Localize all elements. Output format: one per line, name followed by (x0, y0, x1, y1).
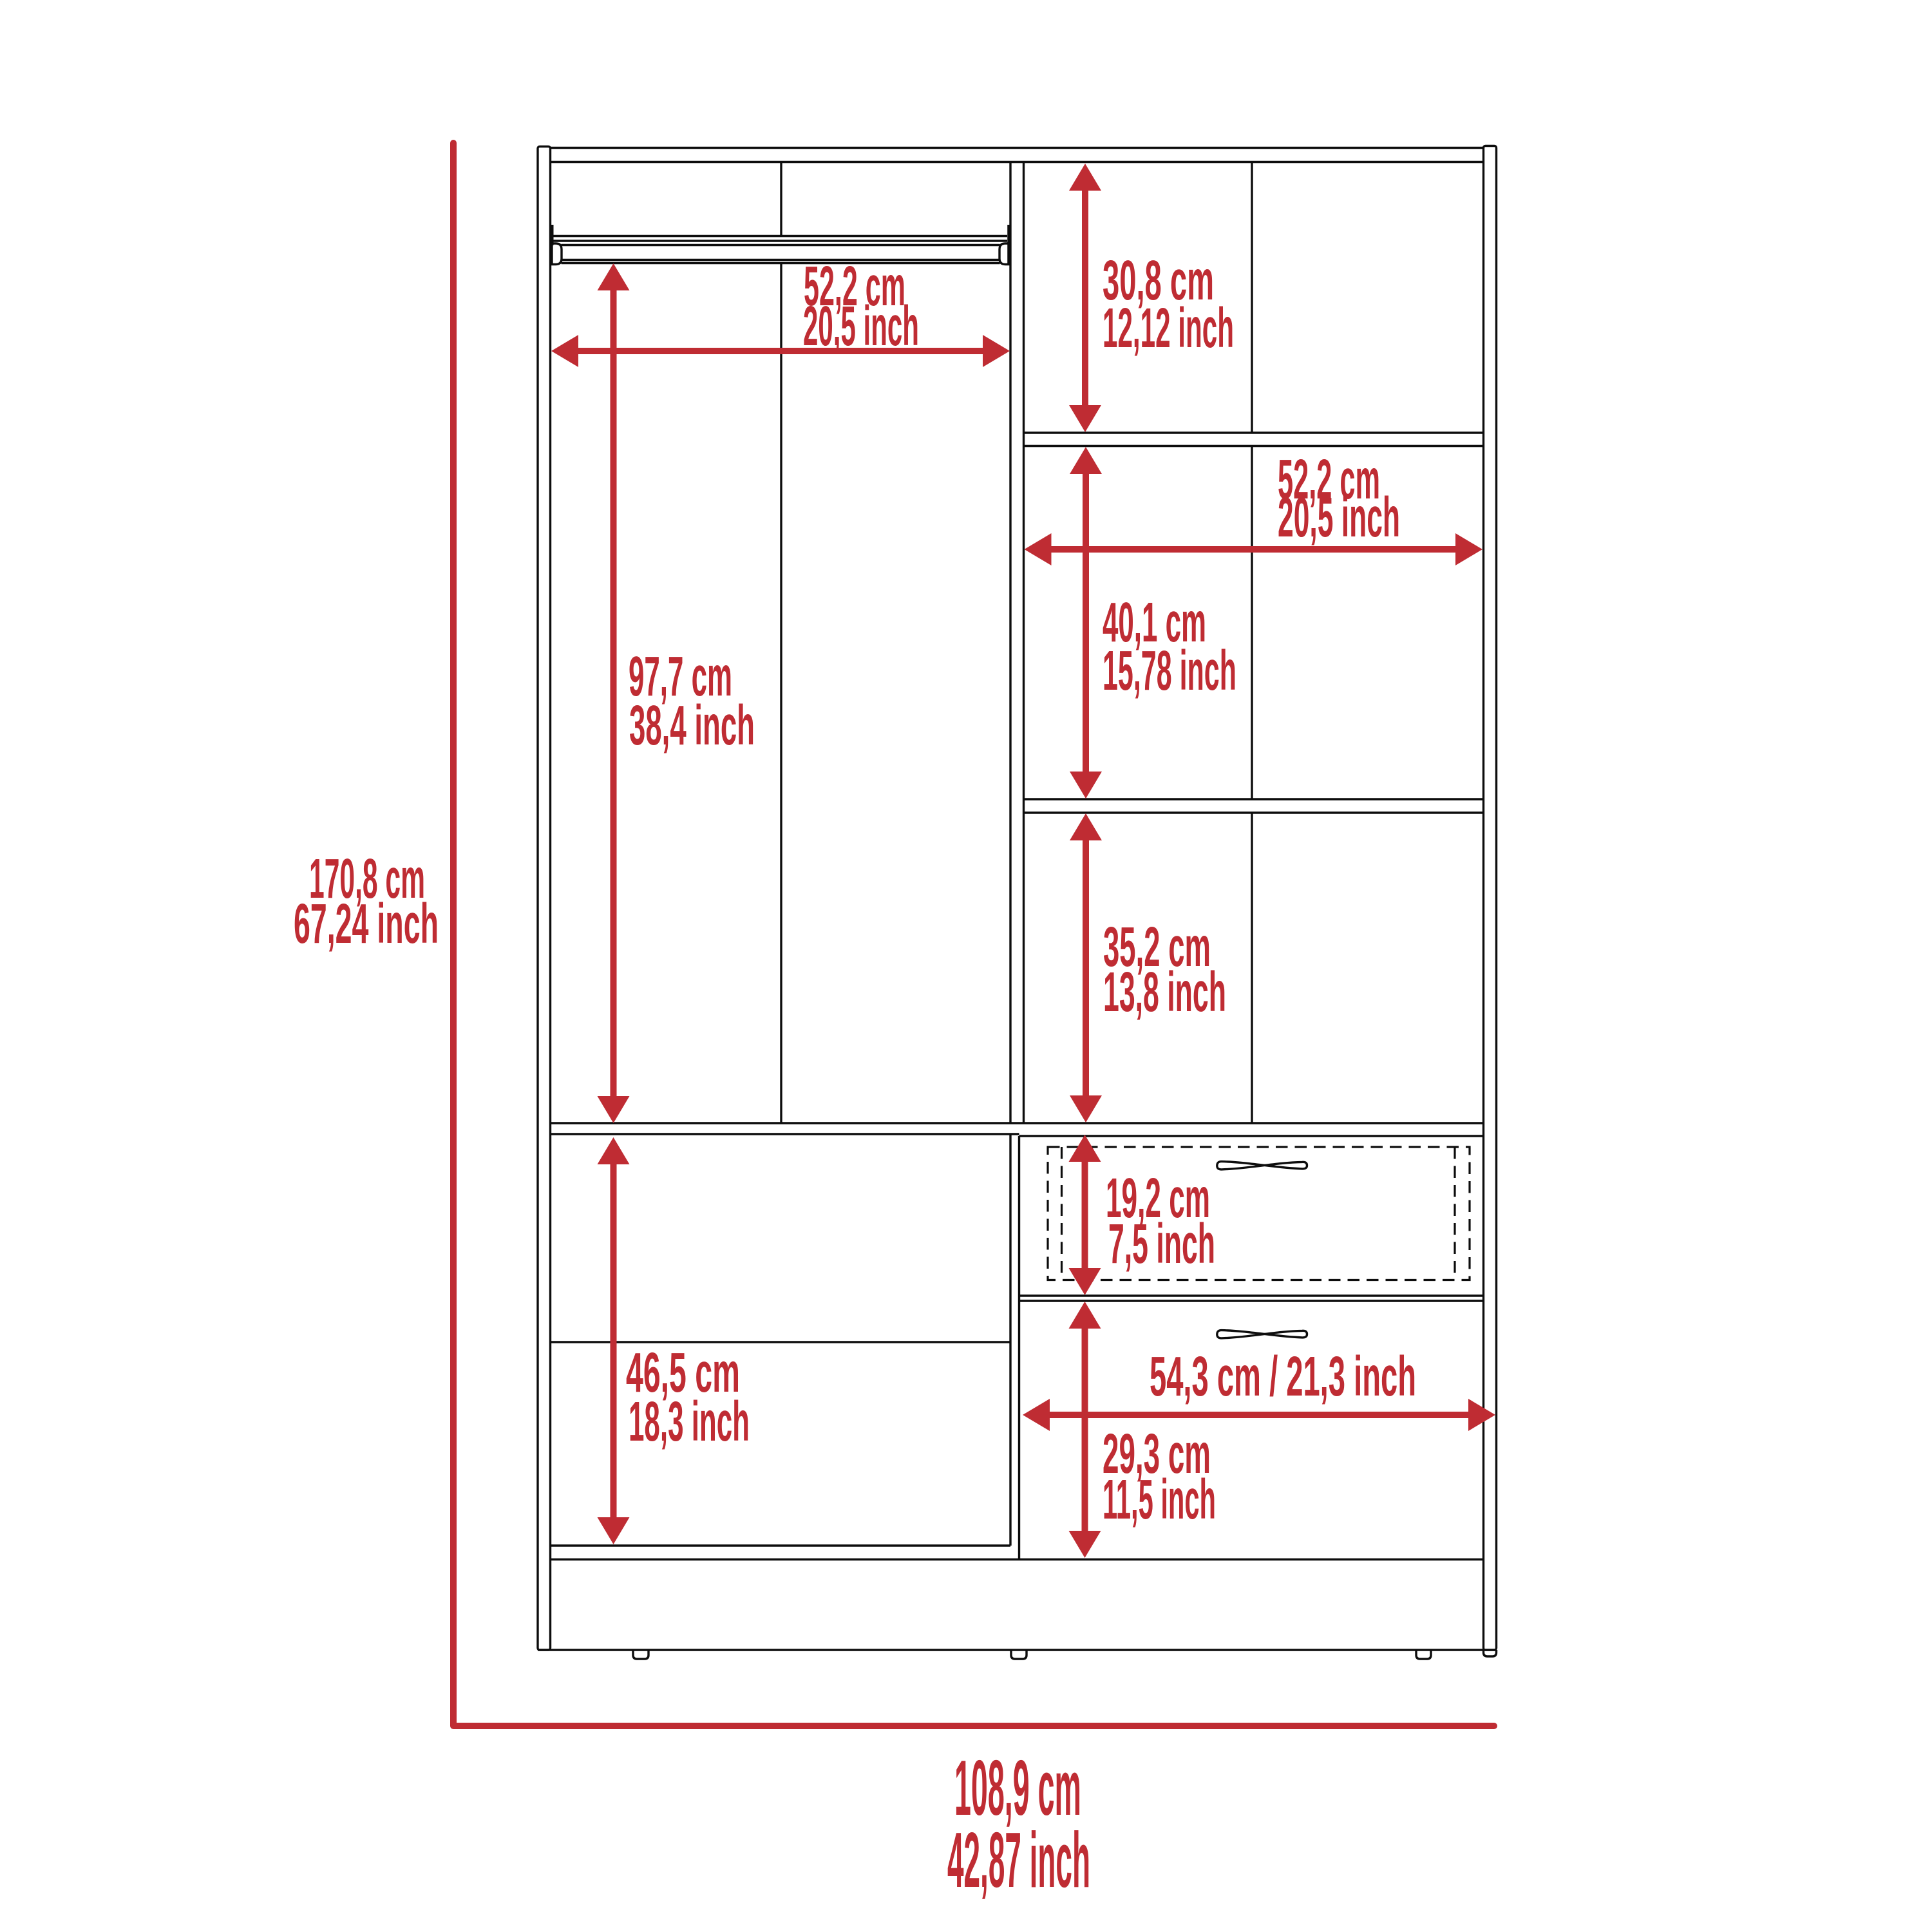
svg-text:18,3 inch: 18,3 inch (629, 1390, 750, 1453)
svg-text:20,5 inch: 20,5 inch (803, 295, 919, 357)
svg-text:38,4 inch: 38,4 inch (629, 694, 755, 757)
svg-text:13,8 inch: 13,8 inch (1103, 961, 1226, 1023)
svg-text:54,3 cm / 21,3 inch: 54,3 cm / 21,3 inch (1150, 1345, 1416, 1408)
svg-text:12,12 inch: 12,12 inch (1103, 297, 1234, 359)
svg-text:11,5 inch: 11,5 inch (1103, 1468, 1216, 1531)
svg-text:20,5 inch: 20,5 inch (1278, 486, 1400, 549)
svg-text:15,78 inch: 15,78 inch (1103, 639, 1236, 702)
svg-text:7,5 inch: 7,5 inch (1108, 1213, 1215, 1275)
svg-text:67,24 inch: 67,24 inch (294, 893, 439, 955)
svg-text:42,87 inch: 42,87 inch (947, 1816, 1090, 1904)
